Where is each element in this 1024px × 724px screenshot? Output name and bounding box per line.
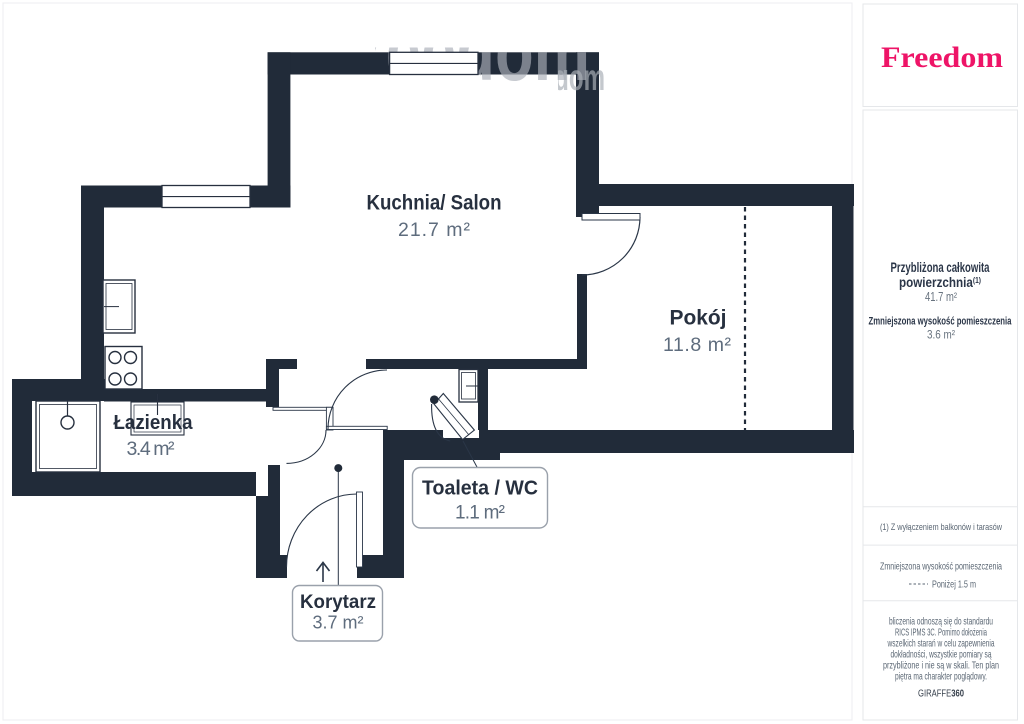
svg-text:3.7 m²: 3.7 m²	[313, 613, 364, 633]
svg-text:41.7 m²: 41.7 m²	[925, 289, 957, 304]
svg-text:3.6 m²: 3.6 m²	[927, 328, 955, 342]
svg-text:piętra ma charakter poglądowy.: piętra ma charakter poglądowy.	[895, 670, 987, 682]
svg-text:powierzchnia(1): powierzchnia(1)	[899, 274, 981, 290]
svg-text:1.1 m²: 1.1 m²	[455, 503, 505, 524]
svg-text:Łazienka: Łazienka	[114, 411, 194, 434]
svg-text:Pokój: Pokój	[670, 307, 727, 330]
svg-text:11.8 m²: 11.8 m²	[663, 334, 732, 356]
svg-text:(1) Z wyłączeniem balkonów i t: (1) Z wyłączeniem balkonów i tarasów	[880, 522, 1002, 533]
svg-text:21.7 m²: 21.7 m²	[398, 219, 471, 241]
svg-text:Przybliżona całkowita: Przybliżona całkowita	[891, 259, 990, 275]
svg-text:3.4 m²: 3.4 m²	[127, 438, 176, 460]
svg-text:Kuchnia/ Salon: Kuchnia/ Salon	[367, 192, 502, 215]
svg-text:Zmniejszona wysokość pomieszcz: Zmniejszona wysokość pomieszczenia	[880, 561, 1002, 573]
svg-text:Zmniejszona wysokość pomieszcz: Zmniejszona wysokość pomieszczenia	[869, 316, 1013, 328]
svg-text:Freedom: Freedom	[881, 42, 1003, 74]
svg-text:GIRAFFE360: GIRAFFE360	[918, 688, 964, 700]
svg-text:Korytarz: Korytarz	[300, 591, 376, 613]
svg-text:Toaleta / WC: Toaleta / WC	[422, 477, 538, 500]
svg-text:Poniżej 1.5 m: Poniżej 1.5 m	[932, 579, 976, 591]
svg-text:freedom: freedom	[340, 4, 590, 98]
